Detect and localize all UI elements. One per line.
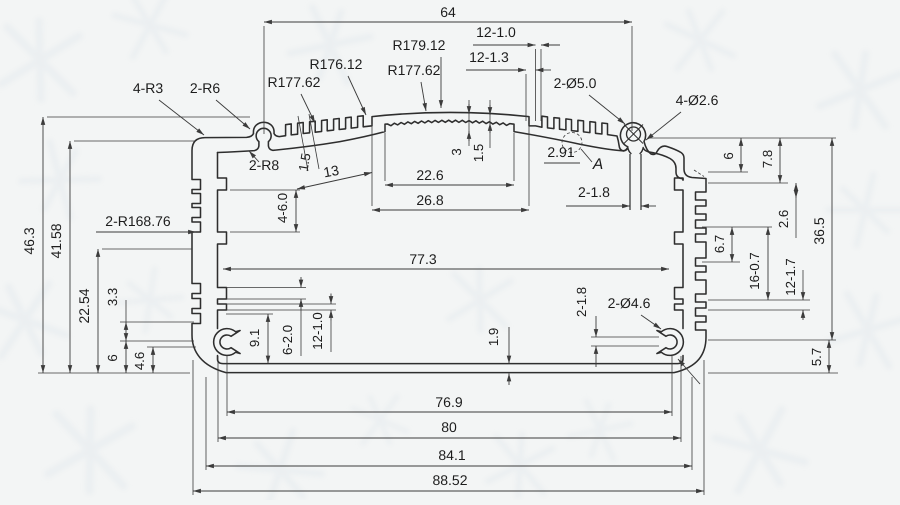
- svg-text:6: 6: [105, 354, 120, 361]
- svg-text:26.8: 26.8: [416, 192, 443, 208]
- svg-text:41.58: 41.58: [48, 223, 64, 258]
- svg-text:88.52: 88.52: [432, 472, 467, 488]
- svg-text:2.91: 2.91: [547, 144, 574, 160]
- svg-text:6.7: 6.7: [712, 235, 727, 253]
- svg-text:R179.12: R179.12: [393, 37, 446, 53]
- svg-text:2-Ø4.6: 2-Ø4.6: [608, 295, 651, 311]
- svg-text:6-2.0: 6-2.0: [280, 325, 295, 355]
- svg-text:16-0.7: 16-0.7: [747, 252, 762, 289]
- svg-text:R177.62: R177.62: [268, 74, 321, 90]
- svg-text:1.5: 1.5: [296, 152, 314, 173]
- svg-text:4-Ø2.6: 4-Ø2.6: [676, 92, 719, 108]
- svg-text:R177.62: R177.62: [388, 62, 441, 78]
- svg-text:2-1.8: 2-1.8: [578, 184, 610, 200]
- svg-text:1.5: 1.5: [471, 144, 486, 162]
- svg-text:3.3: 3.3: [105, 288, 120, 306]
- svg-text:5.7: 5.7: [809, 348, 824, 366]
- svg-text:76.9: 76.9: [435, 394, 462, 410]
- svg-text:2-R8: 2-R8: [249, 157, 280, 173]
- svg-text:4-6.0: 4-6.0: [275, 193, 290, 223]
- svg-text:2-1.8: 2-1.8: [574, 287, 589, 317]
- svg-text:9.1: 9.1: [247, 329, 262, 347]
- svg-text:R176.12: R176.12: [310, 56, 363, 72]
- svg-text:22.54: 22.54: [76, 288, 92, 323]
- svg-text:2-Ø5.0: 2-Ø5.0: [554, 75, 597, 91]
- svg-text:22.6: 22.6: [416, 167, 443, 183]
- svg-text:36.5: 36.5: [811, 217, 827, 244]
- svg-text:4.6: 4.6: [132, 352, 147, 370]
- svg-text:2-R168.76: 2-R168.76: [105, 213, 171, 229]
- svg-text:84.1: 84.1: [438, 447, 465, 463]
- svg-text:3: 3: [449, 148, 464, 155]
- svg-text:80: 80: [441, 419, 457, 435]
- svg-text:7.8: 7.8: [760, 150, 775, 168]
- svg-text:12-1.0: 12-1.0: [310, 312, 325, 349]
- svg-text:4-R3: 4-R3: [133, 80, 164, 96]
- svg-text:A: A: [592, 156, 603, 173]
- svg-text:2.6: 2.6: [776, 210, 791, 228]
- svg-text:12-1.7: 12-1.7: [783, 258, 798, 295]
- svg-text:13: 13: [322, 162, 340, 180]
- svg-text:12-1.0: 12-1.0: [476, 24, 516, 40]
- svg-text:1.9: 1.9: [486, 328, 501, 346]
- svg-text:46.3: 46.3: [21, 227, 37, 254]
- svg-text:12-1.3: 12-1.3: [469, 49, 509, 65]
- svg-text:6: 6: [721, 152, 736, 159]
- svg-text:77.3: 77.3: [409, 251, 436, 267]
- svg-text:64: 64: [440, 4, 456, 20]
- svg-text:2-R6: 2-R6: [190, 80, 221, 96]
